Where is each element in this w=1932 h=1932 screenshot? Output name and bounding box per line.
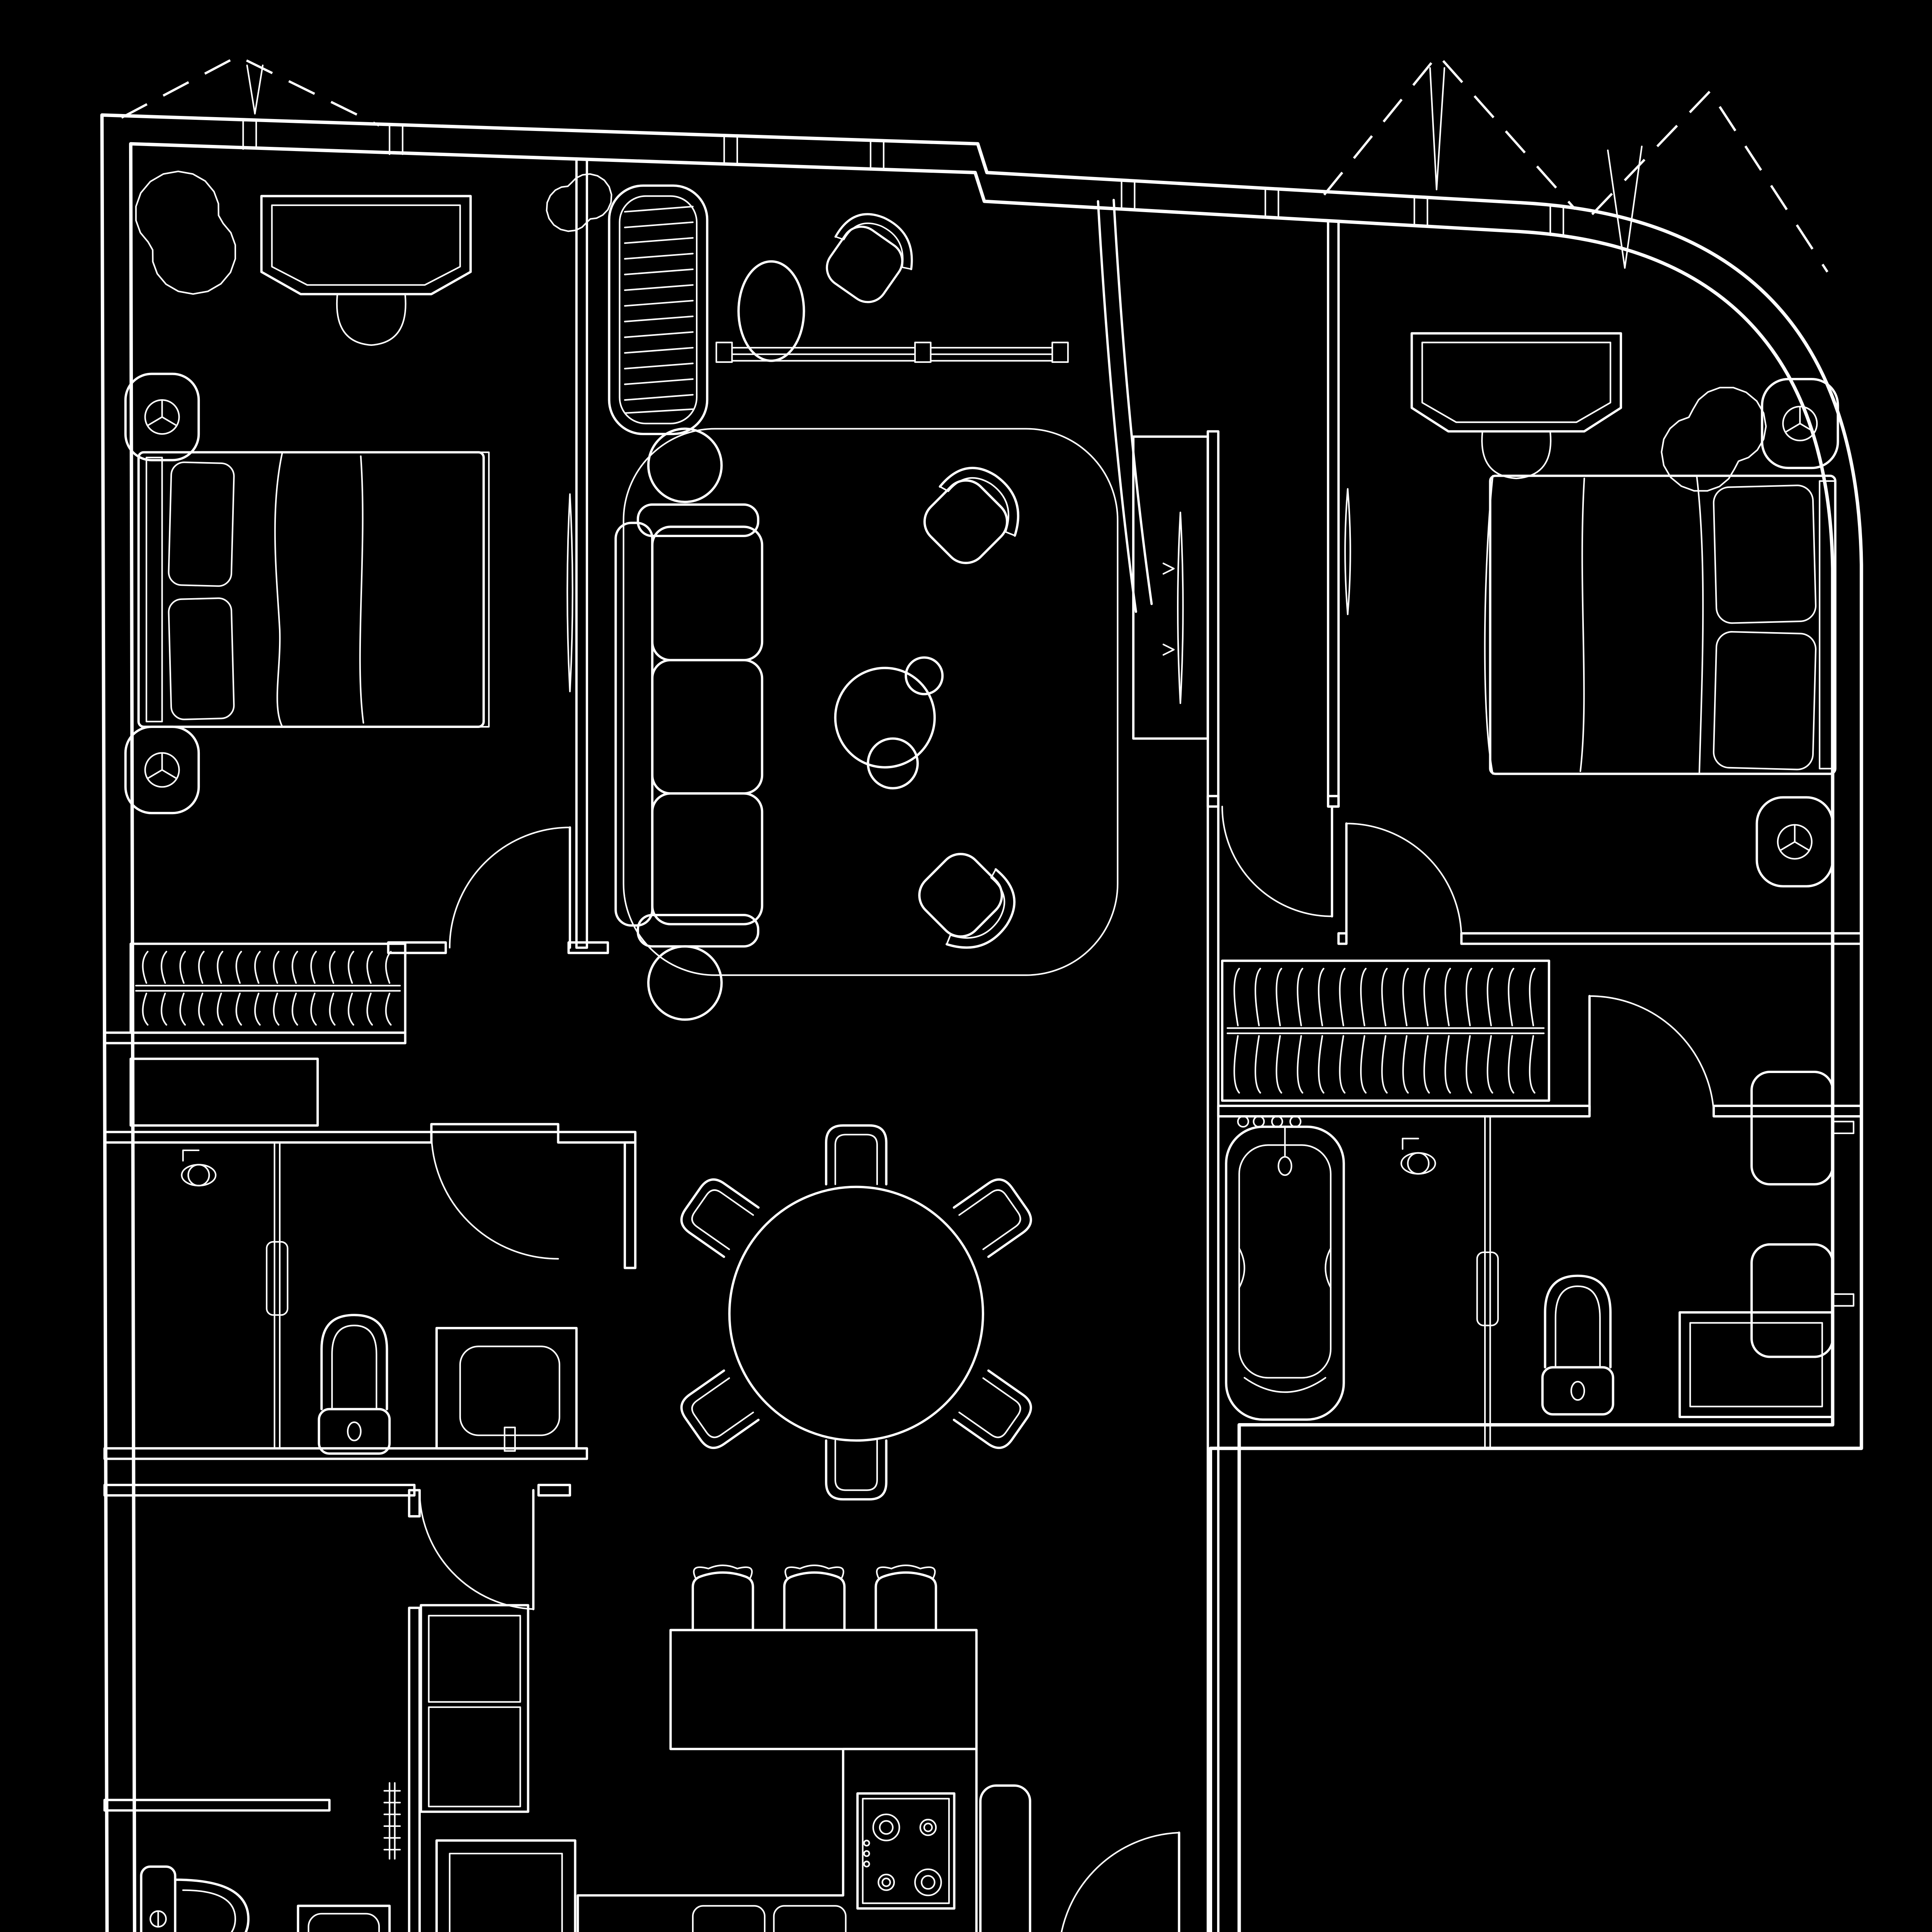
hanger-icon bbox=[1509, 1036, 1514, 1093]
wall-wc-top bbox=[105, 1800, 330, 1810]
wall-basin bbox=[1752, 1245, 1854, 1357]
shower-head-icon bbox=[182, 1150, 216, 1185]
hanger-icon bbox=[180, 993, 185, 1025]
room-bedroom-left bbox=[126, 172, 573, 813]
blanket bbox=[1485, 476, 1703, 774]
bar-stools bbox=[693, 1565, 936, 1630]
door-bathroom-right bbox=[1590, 996, 1714, 1111]
hanger-icon bbox=[311, 993, 316, 1025]
door-bedroom-right bbox=[1346, 823, 1461, 939]
wall-bath-left-top-b bbox=[558, 1132, 636, 1143]
opening-arrow-icon bbox=[1430, 68, 1444, 190]
desk-chair bbox=[1482, 433, 1551, 478]
bar-stool bbox=[784, 1565, 845, 1630]
hanger-icon bbox=[255, 952, 260, 983]
room-bathroom-left bbox=[182, 1143, 577, 1454]
hanger-icon bbox=[367, 993, 372, 1025]
door-bathroom-left bbox=[431, 1124, 558, 1259]
hanger-icon bbox=[386, 993, 391, 1025]
exterior-walls bbox=[102, 55, 1861, 1932]
dining-chair bbox=[676, 1371, 759, 1454]
armchair bbox=[910, 452, 1036, 578]
rug bbox=[624, 429, 1118, 975]
hanger-icon bbox=[1466, 969, 1471, 1026]
desk bbox=[262, 196, 471, 345]
hanger-icon bbox=[1488, 1036, 1493, 1093]
hanger-icon bbox=[330, 952, 335, 983]
wall-basin bbox=[1752, 1072, 1854, 1184]
sun-lounger bbox=[609, 185, 707, 434]
hanger-icon bbox=[1382, 1036, 1387, 1093]
blanket bbox=[275, 452, 489, 726]
exterior-outer-wall bbox=[102, 115, 1861, 1932]
toilet bbox=[319, 1315, 389, 1454]
bar-stool bbox=[693, 1565, 753, 1630]
dining-chair bbox=[954, 1371, 1037, 1454]
wall-bath-right-top-a bbox=[1218, 1106, 1590, 1116]
side-table bbox=[648, 946, 721, 1019]
base-cabinet bbox=[437, 1840, 575, 1932]
glass-jamb bbox=[915, 342, 931, 362]
hanger-icon bbox=[1234, 969, 1239, 1026]
hanger-icon bbox=[218, 952, 223, 983]
hanger-icon bbox=[143, 993, 148, 1025]
tall-unit bbox=[980, 1786, 1030, 1932]
hanger-icon bbox=[1403, 1036, 1408, 1093]
hanger-icon bbox=[1530, 969, 1535, 1026]
armchair bbox=[813, 200, 927, 314]
bar-stool bbox=[876, 1565, 936, 1630]
hanger-icon bbox=[293, 952, 298, 983]
hanger-icon bbox=[1424, 969, 1429, 1026]
hanger-icon bbox=[218, 993, 223, 1025]
hanger-icon bbox=[1319, 1036, 1324, 1093]
toilet bbox=[141, 1867, 248, 1932]
wall-tv-icon bbox=[567, 494, 573, 692]
hanger-icon bbox=[1298, 969, 1303, 1026]
hanger-icon bbox=[349, 993, 354, 1025]
opening-triangle-icon bbox=[122, 56, 379, 125]
hanger-icon bbox=[330, 993, 335, 1025]
hanger-icon bbox=[199, 993, 204, 1025]
toilet bbox=[1543, 1276, 1613, 1415]
vanity bbox=[298, 1906, 389, 1932]
opening-arrow-icon bbox=[247, 65, 263, 114]
shower-screen bbox=[267, 1143, 287, 1449]
room-bathroom-right bbox=[1226, 1072, 1854, 1448]
wardrobe-right bbox=[1222, 961, 1549, 1100]
hanger-rail bbox=[1228, 969, 1544, 1093]
dresser bbox=[131, 1059, 318, 1126]
terrace bbox=[547, 174, 927, 434]
floor-plan-page bbox=[0, 0, 1932, 1932]
hanger-icon bbox=[180, 952, 185, 983]
hanger-icon bbox=[293, 993, 298, 1025]
hanger-icon bbox=[1255, 969, 1260, 1026]
hanger-icon bbox=[143, 952, 148, 983]
dining-table bbox=[730, 1187, 983, 1440]
wall-tv-icon bbox=[1345, 489, 1350, 614]
dining-chair bbox=[954, 1174, 1037, 1257]
lamp-icon bbox=[1778, 825, 1812, 859]
door-entry bbox=[1041, 1833, 1187, 1932]
wall-bedroom-right-left bbox=[1328, 221, 1338, 807]
terrace-glass-wall bbox=[716, 342, 1068, 362]
tv-console bbox=[1133, 437, 1208, 738]
hanger-icon bbox=[236, 952, 241, 983]
door-bedroom-left bbox=[450, 827, 570, 947]
hanger-icon bbox=[1382, 969, 1387, 1026]
gas-cooktop bbox=[857, 1793, 954, 1908]
floor-plan-canvas bbox=[0, 0, 1932, 1932]
hanger-icon bbox=[1445, 969, 1450, 1026]
hanger-icon bbox=[1424, 1036, 1429, 1093]
hanger-icon bbox=[1403, 969, 1408, 1026]
room-wc bbox=[141, 1783, 400, 1932]
nightstand-top bbox=[126, 374, 199, 460]
wall-bath-left-top-a bbox=[105, 1132, 432, 1143]
exterior-inner-wall bbox=[131, 144, 1833, 1932]
hanger-icon bbox=[1361, 969, 1366, 1026]
oval-side-table bbox=[738, 262, 804, 361]
plant-icon bbox=[547, 174, 612, 231]
dining-chair bbox=[826, 1440, 886, 1499]
dining-chair bbox=[676, 1174, 759, 1257]
hanger-icon bbox=[349, 952, 354, 983]
hanger-icon bbox=[1277, 969, 1282, 1026]
hanger-icon bbox=[367, 952, 372, 983]
opening-triangle-icon bbox=[1324, 55, 1575, 209]
hanger-icon bbox=[162, 993, 167, 1025]
hanger-icon bbox=[1466, 1036, 1471, 1093]
lamp-icon bbox=[145, 400, 179, 434]
room-kitchen bbox=[421, 1565, 1030, 1932]
nightstand-bottom bbox=[1757, 798, 1833, 886]
hanger-icon bbox=[1234, 1036, 1239, 1093]
glass-jamb bbox=[1052, 342, 1068, 362]
hanger-icon bbox=[274, 993, 279, 1025]
tall-appliance-columns bbox=[421, 1605, 528, 1812]
nightstand-top bbox=[1762, 379, 1838, 468]
lamp-icon bbox=[145, 753, 179, 787]
wall-kitchen-top-stub bbox=[539, 1485, 570, 1495]
nightstand-bottom bbox=[126, 727, 199, 813]
hanger-icon bbox=[199, 952, 204, 983]
door-kitchen bbox=[420, 1490, 533, 1609]
hanger-icon bbox=[1255, 1036, 1260, 1093]
plant-icon bbox=[136, 172, 235, 294]
curved-hall-wall bbox=[1098, 200, 1152, 612]
side-table bbox=[648, 429, 721, 502]
bathtub bbox=[1226, 1116, 1344, 1420]
desk bbox=[1412, 333, 1621, 479]
hanger-icon bbox=[1319, 969, 1324, 1026]
hanger-icon bbox=[311, 952, 316, 983]
hanger-rail bbox=[136, 952, 400, 1025]
wall-bedroom-left-right bbox=[577, 160, 587, 948]
wall-bath-left-side-stub bbox=[625, 1143, 635, 1268]
room-bedroom-right bbox=[1345, 333, 1838, 886]
wall-storage-top bbox=[105, 1485, 415, 1495]
towel-radiator-icon bbox=[384, 1783, 400, 1859]
hanger-icon bbox=[1530, 1036, 1535, 1093]
hanger-icon bbox=[274, 952, 279, 983]
hanger-icon bbox=[236, 993, 241, 1025]
shower-head-icon bbox=[1401, 1139, 1435, 1174]
glass-jamb bbox=[716, 342, 732, 362]
wall-bedroom-right-bottom bbox=[1461, 933, 1861, 944]
bed-left bbox=[139, 452, 489, 726]
hanger-icon bbox=[1361, 1036, 1366, 1093]
armchair bbox=[904, 840, 1030, 966]
lamp-icon bbox=[1783, 406, 1817, 440]
wardrobe-left bbox=[131, 944, 405, 1032]
hanger-icon bbox=[255, 993, 260, 1025]
hanger-icon bbox=[386, 952, 391, 983]
hanger-icon bbox=[1340, 969, 1345, 1026]
lounger-slats bbox=[625, 207, 693, 413]
coffee-tables bbox=[835, 658, 942, 788]
hanger-icon bbox=[1277, 1036, 1282, 1093]
wall-storage-right-b bbox=[409, 1608, 420, 1932]
window-opening-indicators bbox=[122, 55, 1828, 272]
cabinet bbox=[1680, 1312, 1833, 1417]
island-counter bbox=[670, 1630, 976, 1749]
desk-chair bbox=[337, 296, 406, 345]
hanger-icon bbox=[1340, 1036, 1345, 1093]
dining-chair bbox=[826, 1126, 886, 1184]
window-mullions bbox=[243, 119, 1563, 236]
hanger-icon bbox=[1488, 969, 1493, 1026]
hanger-icon bbox=[1298, 1036, 1303, 1093]
hanger-icon bbox=[162, 952, 167, 983]
sofa bbox=[616, 505, 762, 946]
bed-right bbox=[1485, 476, 1835, 774]
hanger-icon bbox=[1509, 969, 1514, 1026]
shower-screen bbox=[1477, 1116, 1498, 1448]
room-living bbox=[616, 429, 1207, 1020]
wall-below-closet bbox=[105, 1033, 405, 1043]
counter-l bbox=[578, 1749, 976, 1932]
door-right-suite bbox=[1208, 796, 1338, 916]
vanity bbox=[437, 1328, 577, 1451]
hanger-icon bbox=[1445, 1036, 1450, 1093]
wall-tv-icon bbox=[1178, 512, 1183, 703]
wall-bath-right-top-b bbox=[1714, 1106, 1861, 1116]
wall-bedroom-left-bottom-b bbox=[569, 942, 608, 953]
interior-walls bbox=[105, 160, 1862, 1932]
room-dining bbox=[676, 1126, 1037, 1500]
double-sink bbox=[693, 1906, 846, 1932]
